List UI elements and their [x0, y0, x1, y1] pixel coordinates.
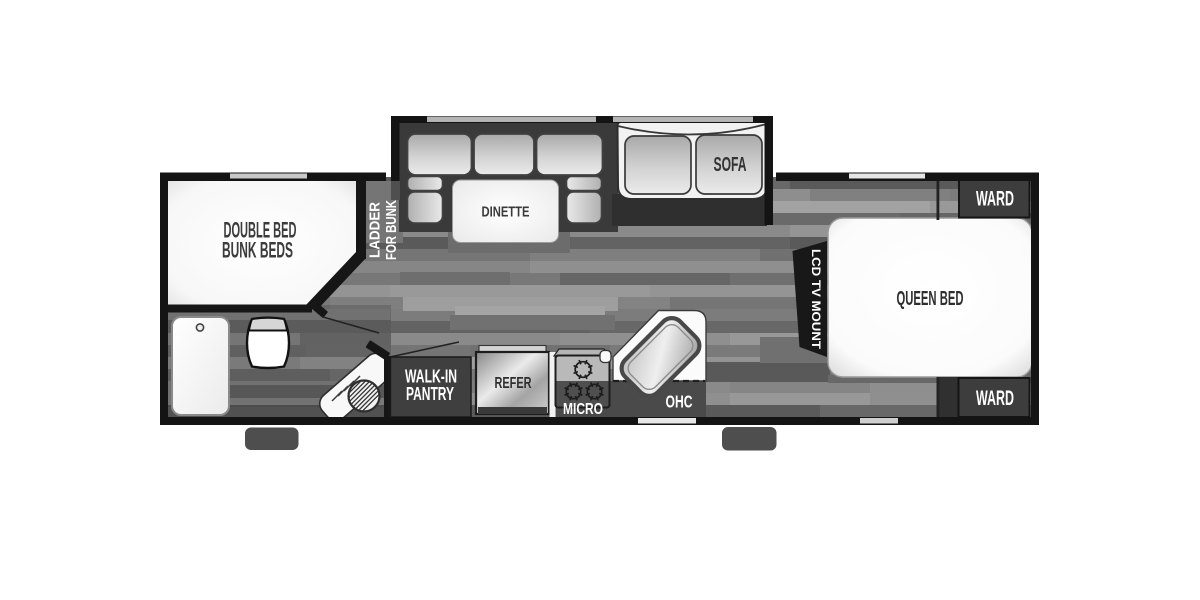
- svg-text:DINETTE: DINETTE: [482, 205, 530, 221]
- svg-text:MICRO: MICRO: [563, 401, 603, 418]
- svg-text:REFER: REFER: [495, 375, 532, 392]
- svg-text:FOR BUNK: FOR BUNK: [383, 200, 400, 260]
- svg-text:LCD TV MOUNT: LCD TV MOUNT: [809, 249, 823, 350]
- svg-text:BUNK BEDS: BUNK BEDS: [222, 238, 293, 263]
- svg-text:OHC: OHC: [666, 392, 693, 412]
- svg-text:QUEEN BED: QUEEN BED: [897, 288, 964, 310]
- svg-text:SOFA: SOFA: [714, 154, 747, 176]
- svg-text:LADDER: LADDER: [367, 202, 384, 258]
- svg-text:PANTRY: PANTRY: [406, 384, 454, 404]
- svg-text:WARD: WARD: [976, 387, 1014, 410]
- svg-text:WARD: WARD: [976, 187, 1014, 210]
